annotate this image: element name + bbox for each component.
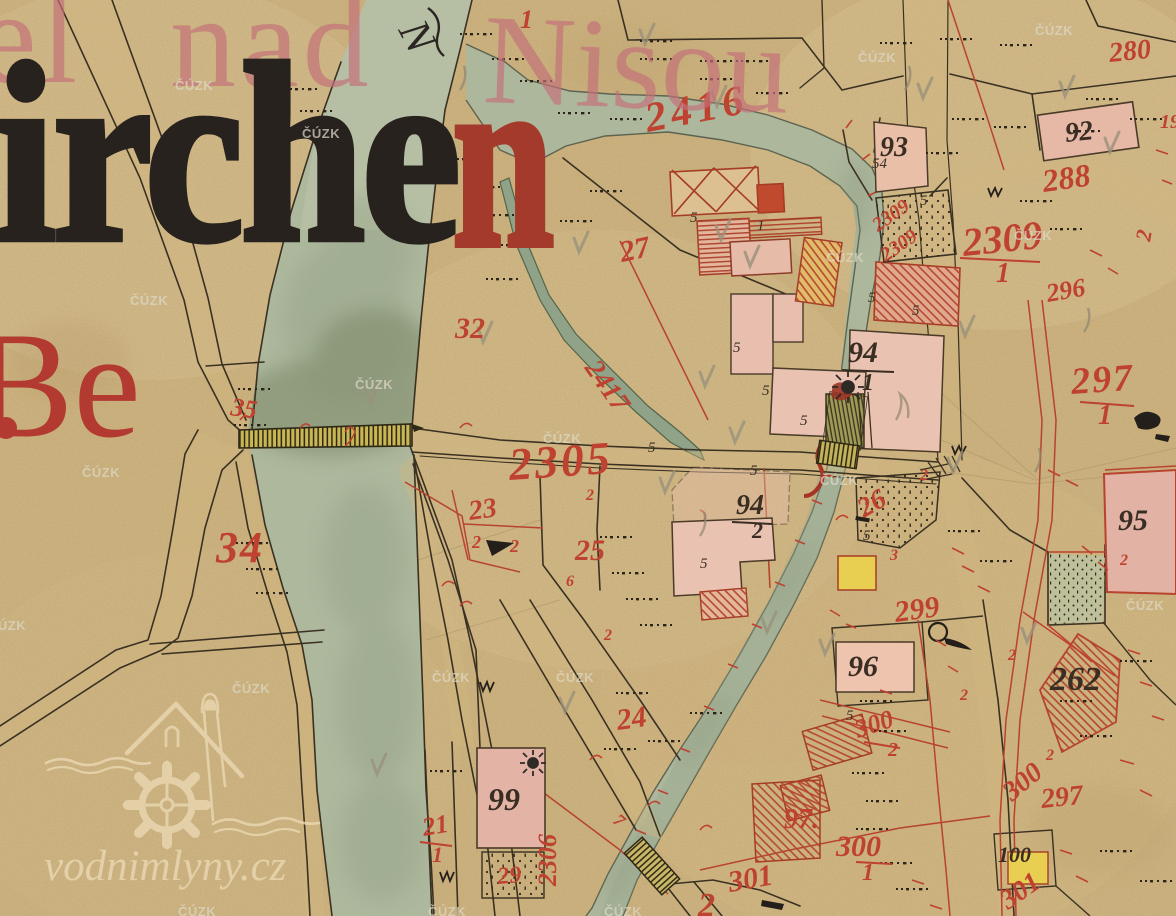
svg-text:ČÚZK: ČÚZK bbox=[302, 126, 340, 141]
svg-text:96: 96 bbox=[848, 650, 878, 683]
svg-text:ČÚZK: ČÚZK bbox=[232, 681, 270, 696]
svg-text:Be: Be bbox=[0, 301, 141, 469]
svg-text:ČÚZK: ČÚZK bbox=[1035, 23, 1073, 38]
svg-text:5: 5 bbox=[762, 383, 770, 399]
svg-text:n: n bbox=[452, 18, 555, 302]
svg-text:1: 1 bbox=[996, 258, 1010, 289]
svg-text:ČÚZK: ČÚZK bbox=[82, 465, 120, 480]
svg-text:5: 5 bbox=[648, 440, 656, 456]
svg-text:93: 93 bbox=[880, 132, 908, 163]
svg-text:2: 2 bbox=[1007, 647, 1016, 664]
svg-text:ČÚZK: ČÚZK bbox=[820, 473, 858, 488]
svg-text:2: 2 bbox=[603, 627, 612, 644]
svg-text:2: 2 bbox=[697, 887, 715, 916]
svg-text:ČÚZK: ČÚZK bbox=[826, 250, 864, 265]
svg-text:2: 2 bbox=[751, 518, 763, 543]
svg-text:irche: irche bbox=[0, 12, 457, 296]
svg-text:2: 2 bbox=[1045, 747, 1054, 764]
svg-text:94: 94 bbox=[736, 490, 764, 521]
svg-text:32: 32 bbox=[454, 312, 485, 345]
svg-text:ČÚZK: ČÚZK bbox=[175, 78, 213, 93]
svg-text:297: 297 bbox=[1038, 780, 1085, 815]
svg-text:288: 288 bbox=[1039, 157, 1093, 199]
svg-text:2: 2 bbox=[919, 467, 928, 484]
svg-text:262: 262 bbox=[1049, 661, 1101, 698]
svg-text:5: 5 bbox=[863, 528, 871, 544]
svg-text:5: 5 bbox=[920, 193, 928, 209]
svg-text:2: 2 bbox=[585, 487, 594, 504]
svg-text:ČÚZK: ČÚZK bbox=[0, 618, 26, 633]
svg-text:6: 6 bbox=[566, 573, 574, 590]
svg-text:5: 5 bbox=[800, 413, 808, 429]
svg-text:99: 99 bbox=[488, 781, 520, 817]
svg-text:ČÚZK: ČÚZK bbox=[858, 50, 896, 65]
svg-text:5: 5 bbox=[733, 340, 741, 356]
svg-text:92: 92 bbox=[1063, 115, 1094, 149]
svg-text:100: 100 bbox=[998, 842, 1031, 867]
svg-text:ČÚZK: ČÚZK bbox=[432, 670, 470, 685]
svg-text:ČÚZK: ČÚZK bbox=[1126, 598, 1164, 613]
svg-text:3: 3 bbox=[889, 547, 898, 564]
svg-text:ČÚZK: ČÚZK bbox=[1014, 228, 1052, 243]
svg-text:23: 23 bbox=[466, 492, 499, 527]
svg-text:2: 2 bbox=[887, 739, 898, 761]
svg-text:299: 299 bbox=[891, 590, 941, 629]
svg-text:2306: 2306 bbox=[533, 834, 562, 887]
svg-text:21: 21 bbox=[419, 809, 451, 842]
svg-text:ČÚZK: ČÚZK bbox=[178, 904, 216, 916]
svg-text:ČÚZK: ČÚZK bbox=[556, 670, 594, 685]
svg-text:2: 2 bbox=[509, 536, 519, 556]
svg-text:300: 300 bbox=[835, 830, 881, 863]
svg-text:25: 25 bbox=[574, 534, 605, 567]
svg-text:1: 1 bbox=[862, 370, 874, 396]
svg-text:ČÚZK: ČÚZK bbox=[355, 377, 393, 392]
svg-text:ČÚZK: ČÚZK bbox=[428, 904, 466, 916]
svg-text:vodnimlyny.cz: vodnimlyny.cz bbox=[44, 843, 287, 890]
svg-text:5: 5 bbox=[868, 290, 876, 306]
svg-text:297: 297 bbox=[1069, 357, 1136, 403]
svg-text:1: 1 bbox=[432, 842, 443, 867]
svg-text:5: 5 bbox=[700, 556, 708, 572]
svg-text:ČÚZK: ČÚZK bbox=[604, 904, 642, 916]
svg-text:35: 35 bbox=[228, 392, 259, 424]
svg-text:29: 29 bbox=[495, 862, 522, 890]
svg-text:94: 94 bbox=[848, 336, 878, 369]
svg-text:5: 5 bbox=[750, 463, 758, 479]
svg-text:97.: 97. bbox=[784, 804, 819, 835]
svg-text:280: 280 bbox=[1106, 34, 1152, 69]
svg-text:ČÚZK: ČÚZK bbox=[130, 293, 168, 308]
svg-text:19: 19 bbox=[1160, 111, 1176, 133]
svg-text:5: 5 bbox=[690, 210, 698, 226]
svg-text:1: 1 bbox=[757, 218, 765, 234]
svg-text:ČÚZK: ČÚZK bbox=[543, 431, 581, 446]
svg-text:2: 2 bbox=[471, 532, 481, 552]
svg-text:5: 5 bbox=[912, 303, 920, 319]
svg-text:95: 95 bbox=[1118, 504, 1148, 537]
svg-text:2: 2 bbox=[959, 687, 968, 704]
svg-text:34: 34 bbox=[215, 523, 264, 572]
svg-text:2: 2 bbox=[1119, 552, 1128, 569]
svg-text:24: 24 bbox=[613, 700, 648, 737]
